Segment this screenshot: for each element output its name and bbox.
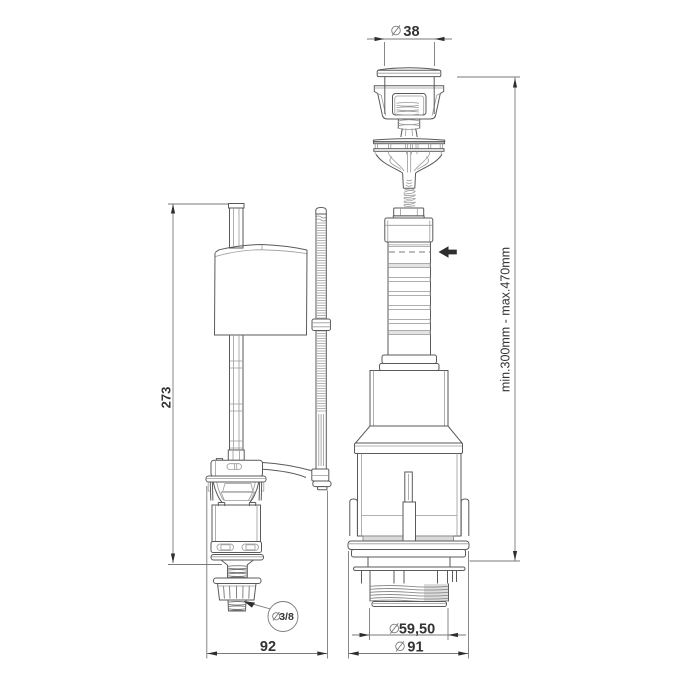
svg-text:38: 38 bbox=[403, 24, 419, 40]
svg-text:92: 92 bbox=[260, 639, 276, 655]
svg-text:3/8: 3/8 bbox=[279, 611, 294, 623]
svg-text:273: 273 bbox=[158, 387, 173, 409]
svg-text:59,50: 59,50 bbox=[399, 622, 435, 638]
svg-text:91: 91 bbox=[407, 640, 423, 656]
svg-text:min.300mm - max.470mm: min.300mm - max.470mm bbox=[498, 247, 512, 392]
